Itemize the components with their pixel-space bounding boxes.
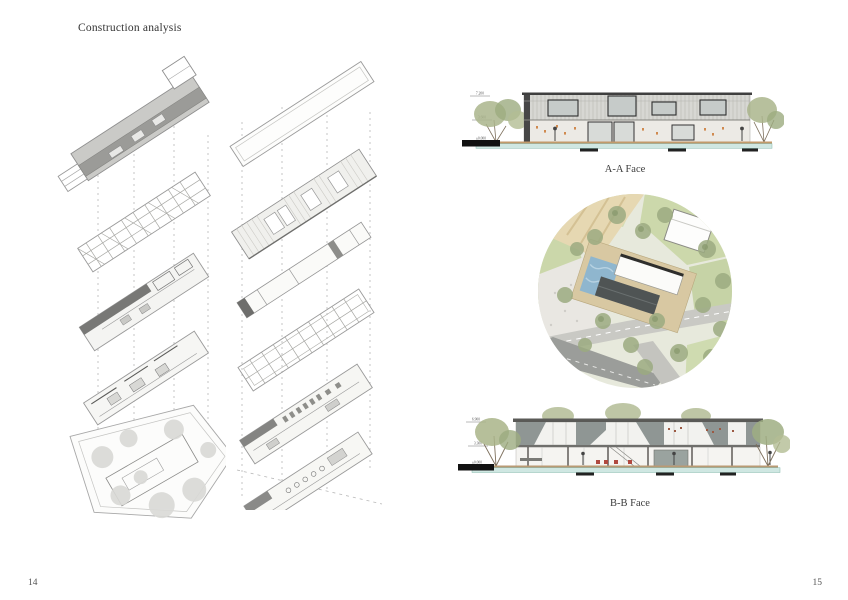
elevation-aa-figure: 7.200 3.600 ±0.000 [460,80,784,164]
section-bb-drawing: 6.900 3.300 ±0.000 [458,400,790,496]
building-elevation [522,93,752,143]
roof-slab-layer [230,61,374,166]
svg-text:6.900: 6.900 [472,418,480,422]
exploded-axonometric-left-drawing [56,50,226,522]
page-number-right: 15 [813,578,823,588]
elevation-aa-drawing: 7.200 3.600 ±0.000 [460,80,784,164]
page-title: Construction analysis [78,22,182,34]
elevation-aa-label: A-A Face [565,164,685,175]
exploded-axonometric-right [212,52,390,510]
exploded-axonometric-right-drawing [212,52,390,510]
ground-line [462,140,772,152]
portfolio-spread: Construction analysis [0,0,848,600]
ground-line [458,464,780,476]
svg-text:7.200: 7.200 [476,92,484,96]
svg-text:±0.000: ±0.000 [472,461,482,465]
section-bb-figure: 6.900 3.300 ±0.000 [458,400,790,496]
site-plan-drawing [537,193,733,389]
tree-left [475,418,521,466]
tree-right [747,97,784,142]
section-bb-label: B-B Face [570,498,690,509]
exploded-axonometric-left [56,50,226,522]
site-plan-figure [537,193,733,389]
svg-text:±0.000: ±0.000 [476,137,486,141]
building-section [513,419,771,467]
site-base-layer [68,402,226,522]
page-number-left: 14 [28,578,38,588]
